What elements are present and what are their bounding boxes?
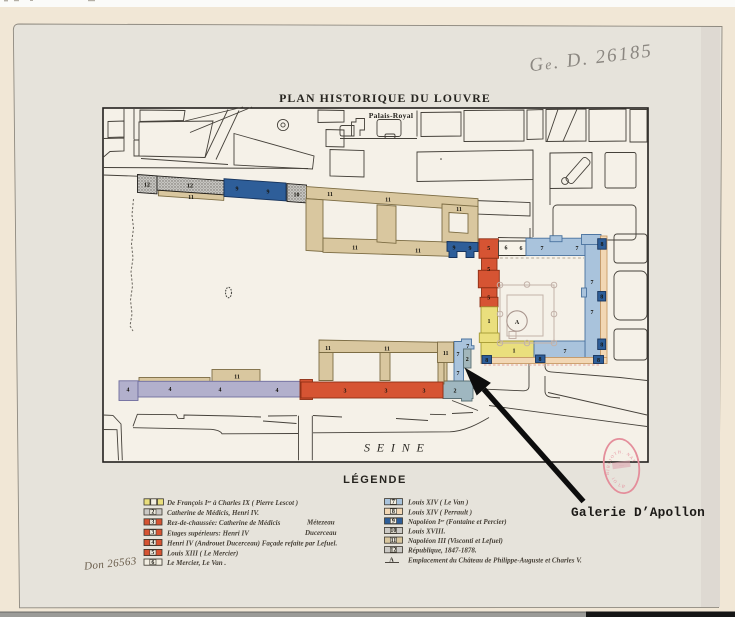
svg-text:6: 6 xyxy=(151,560,154,566)
svg-text:Le Mercier, Le Van .: Le Mercier, Le Van . xyxy=(166,559,226,567)
svg-text:République, 1847-1878.: République, 1847-1878. xyxy=(407,547,477,555)
svg-text:7: 7 xyxy=(541,246,544,252)
svg-text:4: 4 xyxy=(169,387,172,393)
svg-text:5: 5 xyxy=(487,267,490,273)
svg-text:1: 1 xyxy=(488,319,491,325)
svg-text:Galerie D’Apollon: Galerie D’Apollon xyxy=(571,505,705,520)
svg-text:PLAN HISTORIQUE DU LOUVRE: PLAN HISTORIQUE DU LOUVRE xyxy=(279,91,491,105)
svg-text:Rez-de-chaussée: Catherine de: Rez-de-chaussée: Catherine de Médicis xyxy=(166,519,281,527)
svg-text:2: 2 xyxy=(151,510,154,516)
svg-text:11: 11 xyxy=(443,351,449,357)
svg-text:3: 3 xyxy=(151,530,154,536)
svg-text:De François Ier à Charles IX (: De François Ier à Charles IX ( Pierre Le… xyxy=(166,499,298,507)
svg-text:11: 11 xyxy=(188,195,194,201)
svg-text:11: 11 xyxy=(234,375,240,381)
svg-text:3: 3 xyxy=(344,389,347,395)
svg-text:11: 11 xyxy=(325,346,331,352)
svg-text:A: A xyxy=(389,558,394,564)
svg-text:Napoléon Ier (Fontaine et Perc: Napoléon Ier (Fontaine et Percier) xyxy=(407,518,507,526)
svg-text:·····: ····· xyxy=(619,463,625,468)
svg-text:Catherine de Médicis, Henri IV: Catherine de Médicis, Henri IV. xyxy=(167,509,260,517)
svg-text:Napoléon III (Visconti et Lefu: Napoléon III (Visconti et Lefuel) xyxy=(407,537,503,545)
svg-text:3: 3 xyxy=(151,520,154,526)
svg-text:3: 3 xyxy=(423,389,426,395)
svg-text:7: 7 xyxy=(457,371,460,377)
svg-text:12: 12 xyxy=(144,183,150,189)
svg-text:4: 4 xyxy=(127,388,130,394)
svg-text:5: 5 xyxy=(151,550,154,556)
svg-text:3: 3 xyxy=(385,389,388,395)
svg-text:9: 9 xyxy=(453,246,456,252)
svg-text:12: 12 xyxy=(187,184,193,190)
svg-text:8: 8 xyxy=(485,358,488,364)
svg-text:Palais-Royal: Palais-Royal xyxy=(369,111,414,120)
svg-text:Ducerceau: Ducerceau xyxy=(304,529,337,537)
svg-text:2: 2 xyxy=(466,357,469,363)
svg-text:Emplacement du Château de Phil: Emplacement du Château de Philippe-Augus… xyxy=(407,556,582,564)
svg-text:11: 11 xyxy=(384,347,390,353)
svg-text:12: 12 xyxy=(390,547,396,553)
svg-text:4: 4 xyxy=(219,388,222,394)
svg-text:7: 7 xyxy=(591,280,594,286)
svg-text:6: 6 xyxy=(520,246,523,252)
svg-text:2: 2 xyxy=(454,389,457,395)
svg-text:11: 11 xyxy=(385,198,391,204)
svg-text:11: 11 xyxy=(327,192,333,198)
svg-text:Louis XIV ( Perrault ): Louis XIV ( Perrault ) xyxy=(407,508,472,516)
svg-text:8: 8 xyxy=(539,357,542,363)
svg-text:5: 5 xyxy=(487,296,490,302)
svg-text:7: 7 xyxy=(392,499,395,505)
svg-text:4: 4 xyxy=(276,388,279,394)
svg-text:A: A xyxy=(515,320,520,326)
svg-text:7: 7 xyxy=(591,310,594,316)
svg-text:9: 9 xyxy=(267,190,270,196)
svg-text:5: 5 xyxy=(487,246,490,252)
svg-text:Métezeau: Métezeau xyxy=(306,518,335,526)
svg-text:7: 7 xyxy=(457,352,460,358)
svg-text:Louis XIV ( Le Van ): Louis XIV ( Le Van ) xyxy=(407,499,468,507)
svg-text:7: 7 xyxy=(564,349,567,355)
svg-text:LÉGENDE: LÉGENDE xyxy=(343,473,407,486)
svg-text:1: 1 xyxy=(513,349,516,355)
svg-text:9: 9 xyxy=(236,187,239,193)
svg-text:8: 8 xyxy=(601,242,604,248)
svg-text:8: 8 xyxy=(600,343,603,349)
svg-text:11: 11 xyxy=(456,207,462,213)
svg-text:9: 9 xyxy=(392,519,395,525)
svg-text:7: 7 xyxy=(576,246,579,252)
svg-text:11: 11 xyxy=(352,246,358,252)
svg-text:4: 4 xyxy=(151,540,154,546)
svg-text:10: 10 xyxy=(390,528,396,534)
svg-text:SEINE: SEINE xyxy=(364,441,431,455)
svg-text:Louis XVIII.: Louis XVIII. xyxy=(407,528,446,536)
svg-text:11: 11 xyxy=(391,538,397,544)
svg-text:8: 8 xyxy=(392,509,395,515)
svg-text:Louis XIII ( Le Mercier): Louis XIII ( Le Mercier) xyxy=(166,549,238,557)
svg-text:11: 11 xyxy=(415,249,421,255)
svg-text:Etages supérieurs: Henri IV: Etages supérieurs: Henri IV xyxy=(166,529,250,537)
svg-text:10: 10 xyxy=(294,193,300,199)
svg-text:Henri IV (Androuet Ducerceau): Henri IV (Androuet Ducerceau) Façade ref… xyxy=(166,540,337,548)
svg-text:8: 8 xyxy=(600,295,603,301)
svg-text:8: 8 xyxy=(597,358,600,364)
svg-text:6: 6 xyxy=(505,246,508,252)
svg-text:9: 9 xyxy=(469,246,472,252)
